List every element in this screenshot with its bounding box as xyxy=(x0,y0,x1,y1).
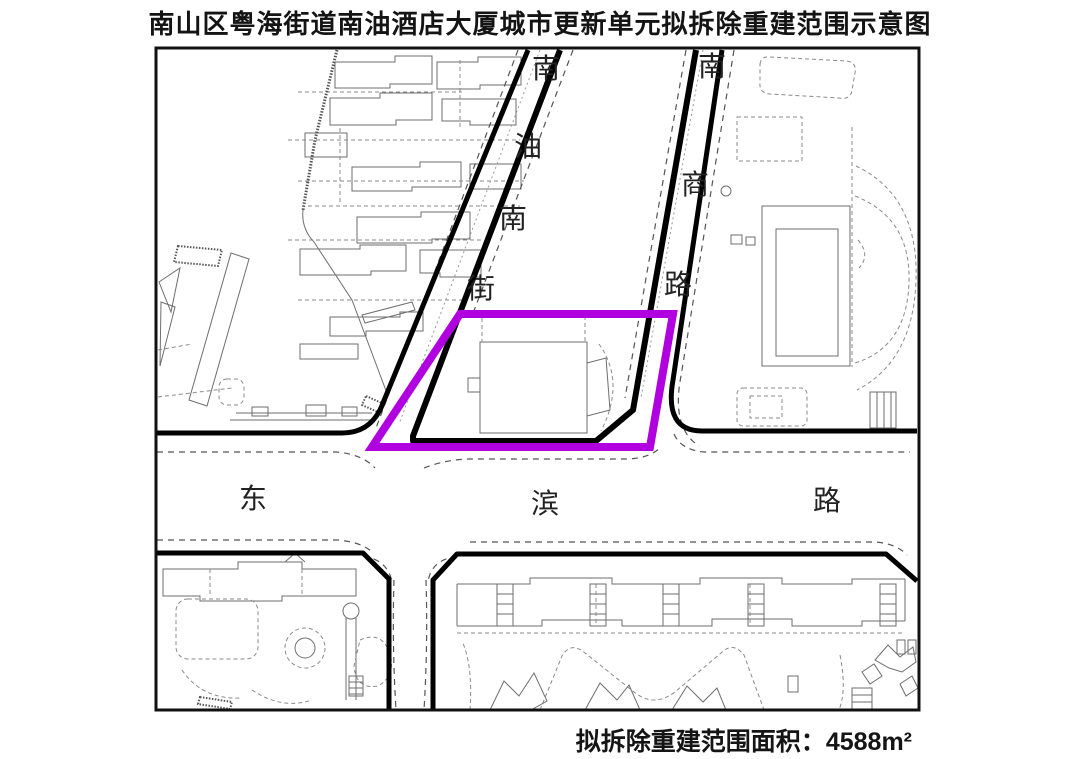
label-dongbin-char-2: 滨 xyxy=(531,488,559,519)
road-dongbin-south-west xyxy=(157,553,389,710)
label-nanyou-char-1: 南 xyxy=(532,53,560,84)
sports-field-outline xyxy=(762,206,850,366)
road-nanyou-west-edge xyxy=(157,50,528,433)
road-dongbin-south-east xyxy=(433,554,917,710)
label-nanyou-char-4: 街 xyxy=(467,273,495,304)
label-nanshang-char-3: 路 xyxy=(664,269,692,300)
hotel-building xyxy=(468,316,613,433)
map-page: 南山区粤海街道南油酒店大厦城市更新单元拟拆除重建范围示意图 xyxy=(0,0,1080,759)
label-nanyou-char-2: 油 xyxy=(514,131,542,162)
area-unit: m² xyxy=(881,728,912,756)
hatched-path xyxy=(303,50,337,210)
hotel-annex-outline xyxy=(587,358,610,416)
hotel-main-outline xyxy=(480,342,587,433)
label-nanshang-char-2: 商 xyxy=(681,169,709,200)
map-title: 南山区粤海街道南油酒店大厦城市更新单元拟拆除重建范围示意图 xyxy=(0,4,1080,41)
label-nanshang-char-1: 南 xyxy=(698,51,726,82)
area-value: 4588 xyxy=(826,728,882,756)
map-canvas: 南 油 南 街 南 商 路 东 滨 路 xyxy=(0,0,1080,759)
label-nanyou-char-3: 南 xyxy=(499,203,527,234)
area-note: 拟拆除重建范围面积：4588m² xyxy=(576,722,912,758)
label-dongbin-char-3: 路 xyxy=(813,485,841,516)
label-dongbin-char-1: 东 xyxy=(239,483,267,514)
road-nanyou-east-edge xyxy=(413,50,696,441)
area-note-label: 拟拆除重建范围面积： xyxy=(576,728,826,756)
